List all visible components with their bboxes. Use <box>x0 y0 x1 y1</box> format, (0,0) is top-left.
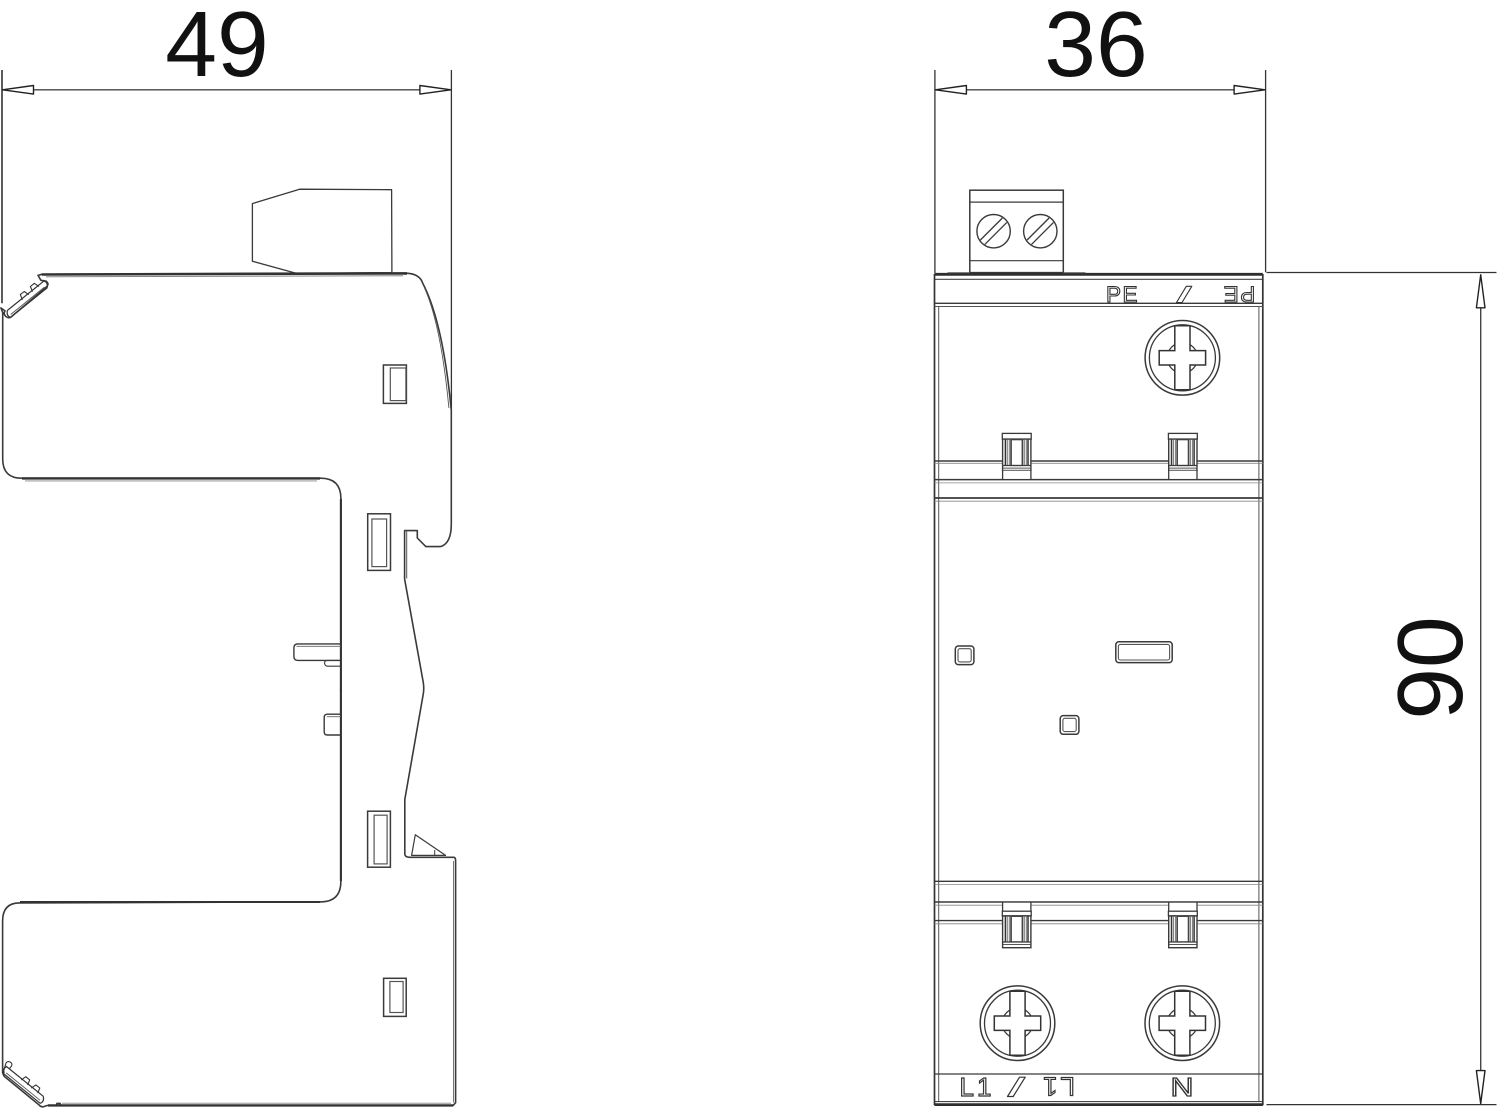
svg-text:PE: PE <box>1106 282 1139 307</box>
svg-text:36: 36 <box>1044 0 1147 96</box>
svg-text:49: 49 <box>165 0 268 96</box>
svg-text:N: N <box>1171 1072 1194 1102</box>
svg-text:L1: L1 <box>1040 1071 1075 1101</box>
svg-text:L1: L1 <box>960 1072 995 1102</box>
svg-text:90: 90 <box>1378 616 1482 719</box>
svg-text:PE: PE <box>1222 281 1255 306</box>
